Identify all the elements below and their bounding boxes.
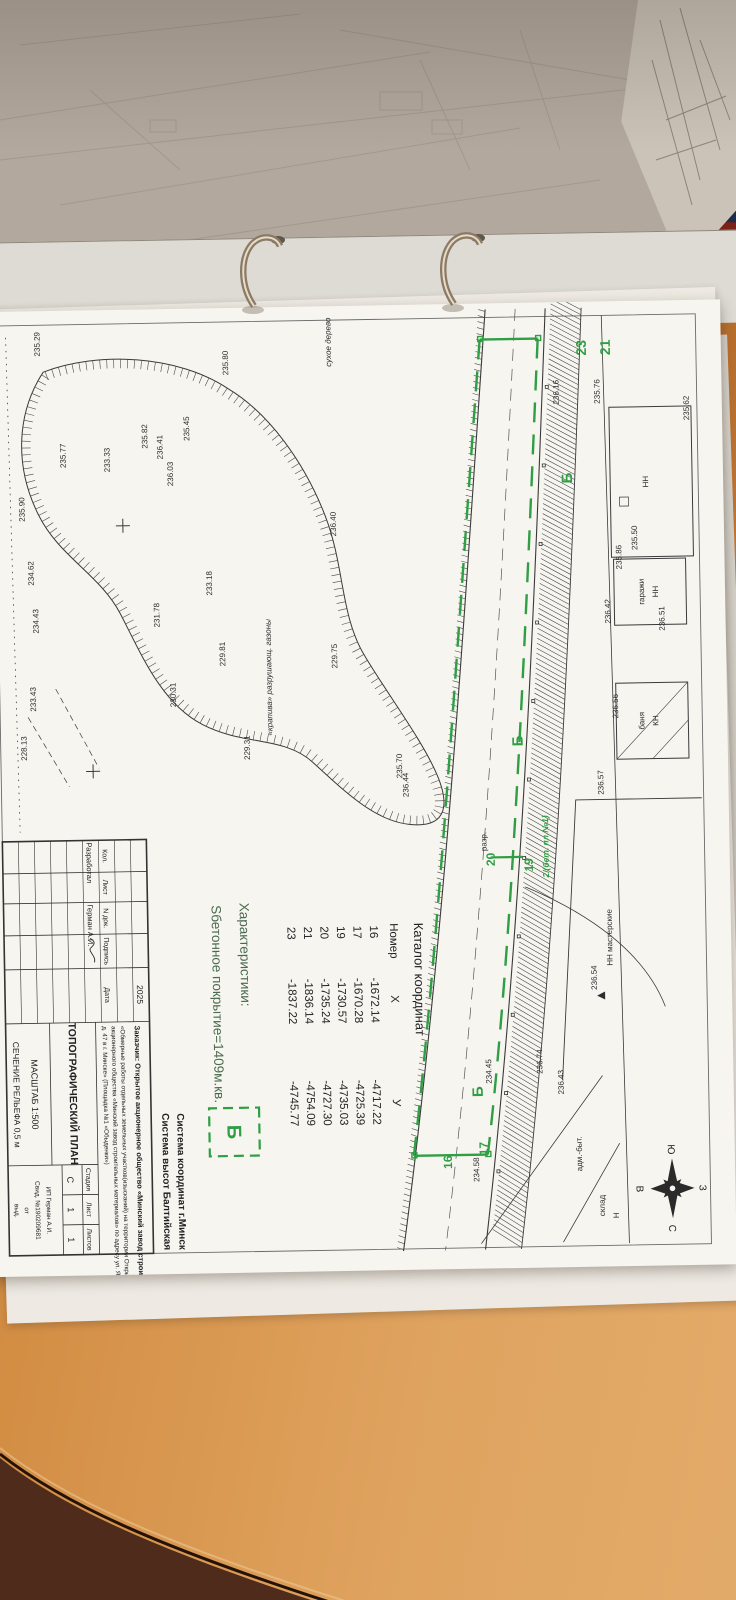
elevation-label: 236.44 (401, 772, 410, 797)
elevation-label: 228.13 (20, 736, 29, 761)
grid-cross (116, 519, 130, 533)
coord-system-note: Система координат г.Минск Система высот … (159, 1113, 187, 1251)
hachure-tick (310, 500, 318, 504)
hachure-tick (54, 533, 61, 539)
hachure-tick (330, 567, 339, 569)
hachure-tick (522, 897, 552, 915)
hachure-tick (337, 778, 343, 785)
hachure-tick (503, 1130, 532, 1149)
hachure-tick (513, 1021, 542, 1039)
grid-cross (86, 764, 100, 778)
hachure-tick (529, 792, 559, 810)
hachure-tick (541, 553, 571, 570)
elevation-label: 234.43 (31, 608, 40, 633)
hachure-tick (352, 648, 360, 652)
parcel-point-label: 2/(бет. пл.№1) (540, 815, 551, 879)
characteristics-area: Sбетонное покрытие=1409м.кв. (208, 905, 226, 1103)
hachure-tick (280, 446, 287, 451)
hachure-tick (58, 538, 65, 544)
compass-rose: С Ю З В (633, 1144, 709, 1233)
hachure-tick (183, 704, 189, 711)
fence-posts (483, 385, 562, 1173)
hachure-tick (418, 1069, 425, 1071)
hachure-tick (423, 815, 424, 824)
elevation-label: 235.50 (630, 525, 639, 550)
map-label: разр. (479, 832, 488, 851)
hachure-tick (160, 680, 168, 685)
hachure-tick (504, 1120, 533, 1139)
hachure-tick (22, 434, 31, 435)
hachure-tick (42, 375, 50, 380)
hachure-tick (533, 727, 563, 744)
hachure-tick (28, 487, 37, 490)
hachure-tick (539, 593, 569, 610)
hachure-tick (291, 463, 299, 468)
hachure-tick (454, 657, 461, 659)
benchmark-triangle (597, 991, 605, 999)
hachure-tick (533, 722, 563, 739)
hachure-tick (547, 408, 577, 425)
hachure-tick (331, 574, 340, 576)
stamp-scale: МАСШТАБ 1:500 (29, 1059, 40, 1129)
hachure-tick (141, 360, 142, 369)
elevation-label: 229.81 (218, 641, 227, 666)
hachure-tick (405, 731, 413, 736)
hachure-tick (138, 645, 146, 649)
hachure-tick (35, 387, 43, 391)
hachure-tick (437, 872, 444, 874)
hachure-tick (83, 562, 89, 569)
hachure-tick (535, 683, 565, 700)
catalog-cell: -1672.14 (368, 977, 381, 1023)
hachure-tick (435, 806, 444, 808)
legend-label: Б (222, 1125, 244, 1140)
fence-post (539, 542, 542, 545)
hachure-tick (542, 518, 572, 535)
map-label: гаражи (637, 579, 646, 605)
hachure-tick (407, 1170, 414, 1172)
hachure-tick (402, 725, 410, 730)
hachure-tick (514, 1011, 543, 1029)
compass-north-label: С (666, 1225, 677, 1232)
fence-post (527, 778, 530, 781)
photo-shadow (0, 0, 736, 150)
hachure-tick (39, 511, 47, 515)
fence-post (545, 385, 548, 388)
hachure-tick (338, 609, 347, 611)
title-block: Кол. Лист N док. Подпись Дата 2025 Разра… (2, 839, 155, 1277)
hachure-tick (333, 581, 342, 583)
catalog-cell: -4735.03 (337, 1080, 350, 1126)
hachure-tick (316, 513, 324, 516)
hachure-tick (24, 420, 33, 422)
hachure-tick (501, 1150, 530, 1169)
parcel-point-label: 16 (441, 1155, 455, 1169)
hachure-tick (398, 1241, 405, 1244)
hachure-tick (539, 588, 569, 605)
hachure-tick (468, 459, 475, 461)
hachure-tick (93, 361, 94, 370)
stamp-customer: Заказчик: Открытое акционерное общество … (133, 1026, 148, 1278)
elevation-label: 229.75 (330, 643, 339, 668)
hachure-tick (505, 1110, 534, 1129)
elevation-label: 236.51 (657, 606, 666, 631)
stamp-col-data: Дата (103, 987, 110, 1003)
hachure-tick (145, 657, 153, 661)
hachure-tick (412, 743, 420, 748)
hachure-tick (25, 474, 34, 476)
hachure-tick (428, 814, 431, 823)
hachure-tick (439, 848, 446, 850)
hachure-tick (505, 1115, 534, 1134)
hachure-tick (518, 956, 547, 974)
hachure-tick (431, 944, 438, 946)
hachure-tick (472, 399, 479, 401)
hachure-tick (535, 688, 565, 705)
hachure-tick (344, 629, 353, 632)
catalog-rows: 16-1672.14-4717.2217-1670.28-4725.3919-1… (284, 925, 382, 1126)
hachure-tick (434, 810, 442, 815)
hachure-tick (46, 523, 54, 528)
hachure-tick (542, 528, 572, 545)
hachure-tick (464, 525, 471, 527)
hachure-tick (524, 877, 554, 895)
hachure-tick (186, 370, 189, 379)
hachure-tick (194, 712, 199, 720)
elevation-label: 236.03 (166, 461, 175, 486)
hachure-tick (115, 601, 123, 606)
hachure-tick (459, 585, 466, 587)
hachure-tick (360, 660, 368, 665)
elevation-label: 235.80 (221, 350, 230, 375)
hachure-tick (125, 620, 133, 624)
hachure-tick (542, 538, 572, 555)
hachure-tick (539, 608, 569, 625)
hachure-tick (287, 739, 290, 748)
hachure-tick (539, 598, 569, 615)
ravine-outline (20, 354, 444, 832)
hachure-tick (496, 1199, 525, 1218)
hachure-tick (531, 762, 561, 780)
stamp-firm4: выд. (13, 1204, 20, 1218)
hachure-tick (428, 973, 435, 975)
fence-post (542, 464, 545, 467)
hachure-tick (156, 674, 164, 679)
map-label: НН (641, 476, 650, 488)
hachure-tick (445, 782, 452, 784)
hachure-tick (450, 716, 457, 718)
hachure-tick (529, 797, 559, 815)
hachure-tick (27, 406, 36, 409)
hachure-tick (535, 678, 565, 695)
hachure-tick (515, 1001, 544, 1019)
hachure-tick (379, 690, 387, 695)
hachure-tick (513, 1016, 542, 1034)
ring-highlight (443, 235, 480, 304)
elevation-label: 235.90 (17, 497, 26, 522)
hachure-tick (534, 707, 564, 724)
hachure-tick (147, 361, 148, 370)
hachure-tick (400, 1224, 407, 1226)
hachure-tick (409, 737, 417, 742)
ring-shadow (442, 304, 464, 312)
hachure-tick (199, 375, 203, 383)
hachure-tick (550, 323, 580, 340)
hachure-tick (410, 816, 411, 825)
hachure-tick (284, 452, 292, 457)
hachure-tick (161, 363, 163, 372)
hachure-tick (549, 358, 579, 375)
hachure-tick (530, 782, 560, 800)
coordinate-catalog: Каталог координат Номер X У 16-1672.14-4… (284, 923, 429, 1127)
hachure-tick (306, 749, 311, 756)
hachure-tick (540, 568, 570, 585)
hachure-tick (367, 672, 375, 677)
hachure-tick (516, 986, 545, 1004)
building-nn (609, 406, 694, 557)
stamp-title: ТОПОГРАФИЧЕСКИЙ ПЛАН (66, 1022, 81, 1165)
hachure-tick (295, 469, 303, 474)
hachure-tick (401, 1218, 408, 1220)
hachure-tick (502, 1140, 531, 1159)
hachure-tick (459, 591, 466, 593)
hachure-tick (222, 388, 227, 395)
hachure-tick (522, 902, 551, 920)
hachure-tick (519, 941, 548, 959)
hachure-tick (545, 453, 575, 470)
hachure-tick (406, 1176, 413, 1178)
stamp-firm3: от (23, 1207, 30, 1214)
catalog-cell: 19 (334, 926, 346, 939)
hachure-tick (402, 1206, 409, 1208)
stamp-project3: д. 47 в г. Минске» (Площадка №1 «Обыденк… (101, 1026, 111, 1165)
hachure-tick (507, 1085, 536, 1104)
hachure-tick (371, 678, 379, 683)
hachure-tick (86, 361, 87, 370)
hachure-tick (408, 1164, 415, 1166)
hachure-tick (541, 548, 571, 565)
hachure-tick (541, 558, 571, 575)
hachure-tick (496, 1204, 525, 1223)
hachure-tick (232, 727, 235, 736)
hachure-tick (228, 392, 233, 400)
hachure-tick (434, 794, 443, 796)
map-label: адм.-быт. (575, 1136, 585, 1171)
hachure-tick (431, 938, 438, 940)
hachure-tick (382, 696, 390, 701)
hachure-tick (30, 493, 39, 496)
hachure-tick (377, 806, 382, 814)
hachure-tick (466, 495, 473, 497)
elevation-label: 236.57 (596, 770, 605, 795)
hachure-tick (542, 523, 572, 540)
hachure-tick (548, 363, 578, 380)
hachure-tick (320, 527, 329, 530)
hachure-tick (103, 583, 110, 589)
legend-swatch: Б (209, 1108, 260, 1157)
hachure-tick (226, 725, 229, 734)
hachure-tick (538, 623, 568, 640)
hachure-tick (263, 424, 270, 430)
dashed-line (56, 688, 99, 769)
hachure-tick (532, 732, 562, 749)
hachure-tick (394, 713, 402, 718)
hachure-tick (547, 403, 577, 420)
hachure-tick (52, 369, 55, 378)
hachure-tick (65, 365, 67, 374)
hachure-tick (523, 887, 553, 905)
hachure-tick (522, 907, 551, 925)
hachure-tick (473, 393, 480, 395)
coord-system-line1: Система координат г.Минск (174, 1113, 187, 1251)
hachure-tick (532, 737, 562, 754)
stamp-sheets-header: Листов (85, 1228, 92, 1251)
hachure-tick (22, 441, 31, 442)
hachure-tick (288, 457, 296, 462)
hachure-tick (541, 563, 571, 580)
hachure-tick (466, 489, 473, 491)
hachure-tick (445, 776, 452, 778)
hachure-tick (219, 723, 222, 731)
hachure-tick (514, 1006, 543, 1024)
ring-highlight (243, 237, 280, 306)
hachure-tick (500, 1160, 529, 1179)
hachure-tick (507, 1090, 536, 1109)
map-label: 236.54 (590, 965, 599, 990)
catalog-cell: -4727.30 (320, 1080, 333, 1126)
hachure-tick (359, 795, 365, 802)
hachure-tick (541, 543, 571, 560)
hachure-tick (327, 554, 336, 556)
hachure-tick (63, 543, 70, 549)
hachure-tick (337, 602, 346, 604)
hachure-tick (386, 702, 394, 707)
hachure-tick (546, 438, 576, 455)
hachure-tick (68, 548, 75, 554)
hachure-tick (100, 360, 101, 369)
hachure-tick (520, 926, 549, 944)
catalog-cell: -1735.24 (318, 978, 331, 1024)
elevation-label: 236.41 (155, 434, 164, 459)
hachure-tick (178, 700, 185, 706)
hachure-tick (23, 468, 32, 469)
hachure-tick (112, 594, 119, 599)
hachure-tick (529, 787, 559, 805)
hachure-tick (167, 365, 169, 374)
hachure-tick (217, 384, 222, 392)
hachure-tick (404, 1194, 411, 1196)
hachure-tick (174, 366, 177, 375)
hachure-tick (79, 363, 81, 372)
parcel-point-label: Б (470, 1086, 487, 1097)
catalog-cell: 20 (317, 926, 329, 939)
binder-ring (238, 228, 298, 323)
hachure-tick (497, 1189, 526, 1208)
hachure-tick (396, 813, 399, 822)
hachure-tick (78, 557, 84, 564)
hachure-tick (398, 719, 406, 724)
hachure-tick (122, 614, 130, 618)
elevation-label: 235.86 (614, 544, 623, 569)
hachure-tick (502, 1145, 531, 1164)
hachure-tick (425, 767, 433, 771)
coord-system-line2: Система высот Балтийская (159, 1113, 172, 1250)
stamp-firm1: ИП Герман А.И. (44, 1186, 52, 1234)
hachure-tick (534, 693, 564, 710)
hachure-tick (193, 372, 196, 380)
hachure-tick (38, 381, 46, 386)
road-slope-top (505, 308, 597, 1249)
hachure-tick (515, 991, 544, 1009)
hachure-tick (513, 1026, 542, 1044)
hachure-tick (88, 567, 94, 573)
parcel-point-label: 20 (484, 852, 498, 866)
hachure-tick (448, 746, 455, 748)
hachure-tick (383, 809, 387, 817)
hachure-tick (356, 654, 364, 659)
hachure-tick (26, 480, 35, 482)
elevation-label: 233.33 (102, 447, 111, 472)
hachure-tick (335, 595, 344, 597)
elevation-label: 236.74 (535, 1049, 544, 1074)
topographic-plan-drawing: 235.29235.80236.41235.45235.82233.33235.… (0, 299, 736, 1277)
hachure-tick (534, 702, 564, 719)
hachure-tick (471, 423, 478, 425)
catalog-title: Каталог координат (411, 923, 428, 1036)
dashed-line (28, 717, 69, 788)
stamp-col-kol: Кол. (100, 849, 107, 863)
hachure-tick (36, 505, 44, 509)
hachure-tick (22, 455, 31, 456)
hachure-tick (520, 931, 549, 949)
hachure-tick (317, 759, 323, 766)
hachure-tick (461, 561, 468, 563)
stamp-name: Герман А.И. (85, 904, 95, 946)
hachure-tick (305, 488, 313, 492)
hachure-tick (453, 681, 460, 683)
hachure-tick (390, 707, 398, 712)
elevation-label: 234.62 (26, 561, 35, 586)
hachure-tick (536, 673, 566, 690)
hachure-tick (517, 976, 546, 994)
hachure-tick (546, 418, 576, 435)
map-label: склад (598, 1194, 607, 1216)
catalog-cell: -4717.22 (370, 1079, 383, 1125)
hachure-tick (244, 405, 250, 412)
characteristics-block: Характеристики: Sбетонное покрытие=1409м… (208, 903, 254, 1104)
map-label: НН (651, 585, 660, 597)
hachure-tick (180, 368, 183, 377)
hachure-tick (493, 1229, 522, 1248)
hachure-tick (477, 327, 484, 329)
compass-hub (669, 1185, 676, 1192)
hachure-tick (434, 908, 441, 910)
stamp-stage-header: Стадия (84, 1168, 91, 1192)
characteristics-title: Характеристики: (236, 903, 253, 1007)
hachure-tick (239, 728, 241, 737)
hachure-tick (462, 555, 469, 557)
compass-west-label: З (696, 1185, 707, 1191)
hachure-tick (532, 742, 562, 760)
hachure-tick (512, 1031, 541, 1049)
hachure-tick (546, 423, 576, 440)
hachure-tick (119, 607, 127, 611)
hachure-tick (353, 791, 359, 798)
hachure-tick (508, 1080, 537, 1099)
hachure-tick (543, 503, 573, 520)
elevation-label: 235.76 (592, 379, 601, 404)
hachure-tick (402, 1212, 409, 1214)
